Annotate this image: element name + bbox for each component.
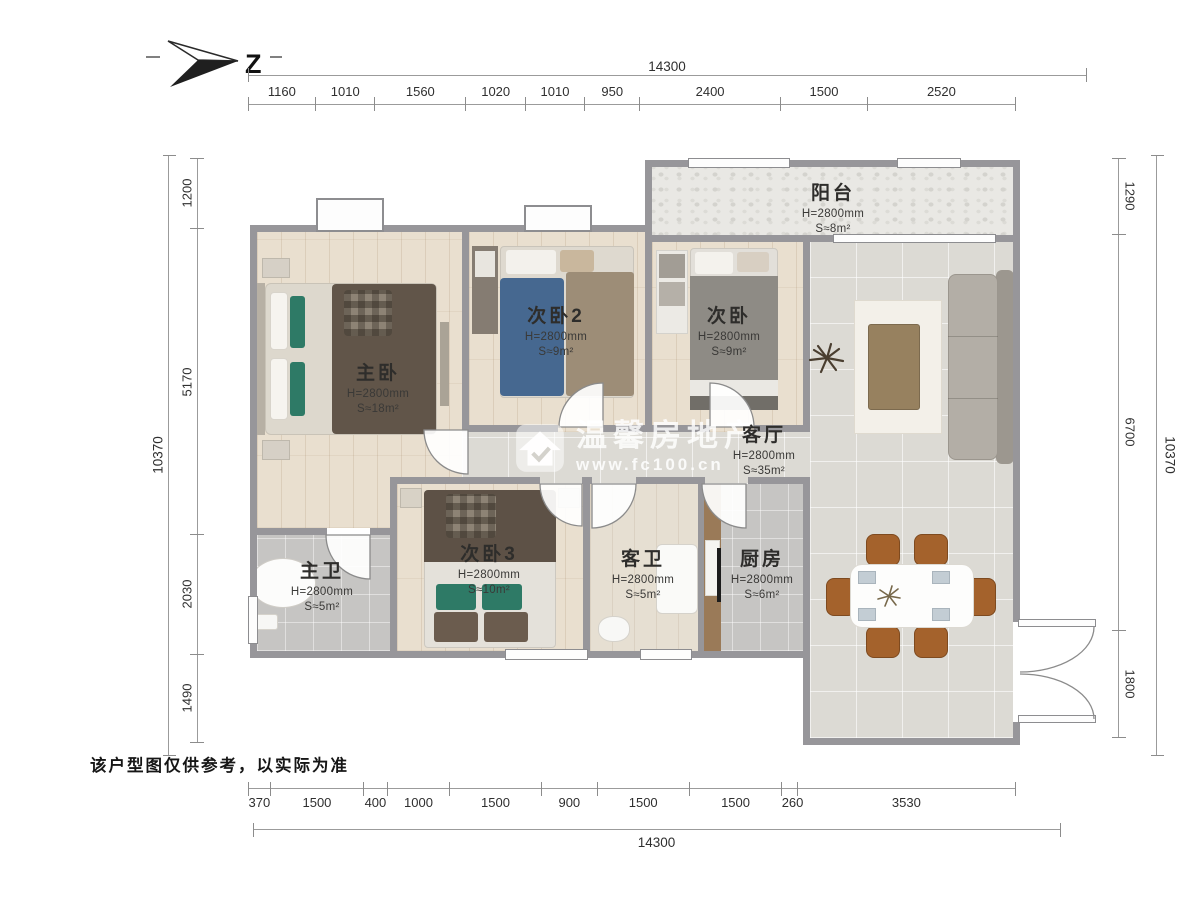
wall — [590, 225, 652, 232]
dimension-total-label: 10370 — [1163, 436, 1178, 474]
room-label-master-bedroom: 主卧 H=2800mm S≈18m² — [347, 362, 409, 417]
room-area: S≈35m² — [733, 464, 795, 479]
nightstand — [558, 488, 580, 508]
dimension-row-top: 11601010156010201010950240015002520 — [248, 84, 1015, 105]
dimension-value: 5170 — [179, 367, 194, 396]
room-area: S≈9m² — [698, 345, 760, 360]
sofa-cushion-divider — [948, 336, 998, 337]
dimension-value: 1000 — [388, 795, 450, 810]
pillow — [560, 250, 594, 272]
bed-bench — [440, 322, 449, 406]
place-setting — [932, 608, 950, 621]
place-setting — [858, 608, 876, 621]
watermark: 温馨房地产 www.fc100.cn — [514, 420, 761, 475]
wall — [583, 484, 590, 658]
dimension-value: 1010 — [525, 84, 584, 99]
dimension-segment: 2030 — [176, 534, 197, 654]
dimension-value: 1200 — [179, 179, 194, 208]
dimension-segment: 1800 — [1119, 631, 1140, 737]
room-height: H=2800mm — [291, 585, 353, 600]
window — [640, 649, 692, 660]
sofa — [948, 274, 998, 460]
dimension-row-right: 129067001800 — [1118, 158, 1140, 737]
dimension-segment: 2520 — [868, 84, 1015, 104]
window — [505, 649, 588, 660]
wardrobe-door — [659, 254, 685, 278]
house-icon — [514, 422, 566, 474]
dimension-value: 1160 — [248, 84, 316, 99]
pillow-teal — [290, 296, 305, 348]
dimension-value: 1560 — [375, 84, 466, 99]
dining-chair — [914, 626, 948, 658]
place-setting — [858, 571, 876, 584]
dimension-segment: 1290 — [1119, 158, 1140, 234]
wall — [250, 528, 327, 535]
pillow-brown — [484, 612, 528, 642]
pillow-plaid — [344, 290, 392, 336]
dimension-value: 370 — [248, 795, 271, 810]
room-area: S≈9m² — [525, 345, 587, 360]
wall — [250, 225, 322, 232]
dimension-total-top: 14300 — [248, 58, 1086, 76]
dimension-segment: 1200 — [176, 158, 197, 229]
dimension-segment: 1020 — [466, 84, 526, 104]
wall — [803, 484, 810, 658]
dimension-value: 1800 — [1122, 669, 1137, 698]
dimension-segment: 400 — [363, 789, 388, 815]
entry-door-leaf — [1018, 619, 1096, 627]
dimension-segment: 1560 — [375, 84, 466, 104]
pillow-plaid — [446, 494, 496, 538]
wall — [390, 477, 540, 484]
dimension-value: 1290 — [1122, 182, 1137, 211]
room-label-bedroom-2: 次卧2 H=2800mm S≈9m² — [525, 305, 587, 360]
room-area: S≈18m² — [347, 402, 409, 417]
window — [524, 205, 592, 232]
room-name: 客厅 — [733, 424, 795, 449]
wardrobe-door — [659, 282, 685, 306]
floor-plan-canvas: Z 主卧 — [0, 0, 1200, 900]
room-area: S≈8m² — [802, 222, 864, 237]
dimension-segment: 1500 — [689, 789, 781, 815]
room-name: 次卧3 — [458, 543, 520, 568]
dimension-value: 1500 — [449, 795, 541, 810]
wall — [636, 477, 705, 484]
entry-door-arc — [1020, 674, 1094, 719]
bed-headboard — [257, 283, 265, 435]
dimension-value: 1020 — [466, 84, 526, 99]
dimension-value: 260 — [782, 795, 798, 810]
room-area: S≈6m² — [731, 588, 793, 603]
wall — [698, 484, 704, 658]
room-name: 次卧2 — [525, 305, 587, 330]
room-label-master-bath: 主卫 H=2800mm S≈5m² — [291, 560, 353, 615]
place-setting — [932, 571, 950, 584]
pillow — [737, 252, 769, 272]
pillow — [270, 358, 288, 420]
dimension-segment: 1500 — [271, 789, 363, 815]
room-name: 客卫 — [612, 548, 674, 573]
room-label-guest-bath: 客卫 H=2800mm S≈5m² — [612, 548, 674, 603]
dimension-value: 1500 — [689, 795, 781, 810]
dimension-segment: 900 — [542, 789, 597, 815]
dimension-value: 1500 — [597, 795, 689, 810]
wall — [250, 225, 257, 658]
window — [688, 158, 790, 168]
wall — [803, 242, 810, 432]
toilet — [598, 616, 630, 642]
bed-footer — [690, 396, 778, 410]
room-height: H=2800mm — [802, 207, 864, 222]
dimension-total-label: 10370 — [151, 436, 166, 474]
dimension-segment: 950 — [584, 84, 640, 104]
wall — [462, 232, 469, 430]
room-name: 阳台 — [802, 182, 864, 207]
pillow-teal — [290, 362, 305, 416]
dimension-segment: 1490 — [176, 654, 197, 742]
pillow — [695, 252, 733, 274]
dining-chair — [866, 534, 900, 566]
coffee-table — [868, 324, 920, 410]
wall — [582, 477, 592, 484]
window — [248, 596, 258, 644]
wall — [803, 738, 1020, 745]
compass-arrow — [168, 41, 238, 61]
dining-chair — [914, 534, 948, 566]
room-name: 次卧 — [698, 305, 760, 330]
wall — [381, 225, 528, 232]
nightstand — [262, 258, 290, 278]
dimension-value: 2400 — [640, 84, 780, 99]
dimension-value: 400 — [363, 795, 388, 810]
room-height: H=2800mm — [612, 573, 674, 588]
room-name: 主卫 — [291, 560, 353, 585]
room-height: H=2800mm — [525, 330, 587, 345]
room-height: H=2800mm — [698, 330, 760, 345]
dimension-segment: 1500 — [780, 84, 868, 104]
dimension-total-label: 14300 — [648, 59, 686, 74]
room-height: H=2800mm — [458, 568, 520, 583]
room-name: 厨房 — [731, 548, 793, 573]
dimension-row-left: 1200517020301490 — [176, 158, 198, 742]
room-area: S≈10m² — [458, 583, 520, 598]
dimension-segment: 1500 — [597, 789, 689, 815]
dimension-total-right: 10370 — [1156, 155, 1157, 755]
wall — [390, 477, 397, 658]
entry-door-leaf — [1018, 715, 1096, 723]
room-area: S≈5m² — [612, 588, 674, 603]
dimension-value: 3530 — [798, 795, 1015, 810]
room-label-bedroom-3: 次卧3 H=2800mm S≈10m² — [458, 543, 520, 598]
dimension-value: 2520 — [868, 84, 1015, 99]
dimension-segment: 370 — [248, 789, 271, 815]
dimension-segment: 260 — [782, 789, 798, 815]
pillow-brown — [434, 612, 478, 642]
pillow — [270, 292, 288, 350]
dimension-segment: 6700 — [1119, 234, 1140, 630]
dimension-row-bottom: 370150040010001500900150015002603530 — [248, 788, 1015, 815]
sofa-cushion-divider — [948, 398, 998, 399]
room-label-bedroom: 次卧 H=2800mm S≈9m² — [698, 305, 760, 360]
dimension-total-bottom: 14300 — [253, 829, 1060, 852]
pillow — [506, 250, 556, 274]
room-height: H=2800mm — [733, 449, 795, 464]
room-height: H=2800mm — [347, 387, 409, 402]
wall — [645, 242, 652, 432]
dimension-value: 2030 — [179, 580, 194, 609]
window — [316, 198, 384, 232]
dimension-segment: 2400 — [640, 84, 780, 104]
dimension-segment: 1010 — [525, 84, 584, 104]
dimension-total-left: 10370 — [168, 155, 169, 755]
room-area: S≈5m² — [291, 600, 353, 615]
dimension-segment: 5170 — [176, 229, 197, 534]
dimension-segment: 1500 — [449, 789, 541, 815]
dimension-value: 6700 — [1122, 418, 1137, 447]
dimension-value: 1010 — [316, 84, 375, 99]
dimension-value: 950 — [584, 84, 640, 99]
dining-chair — [866, 626, 900, 658]
dimension-value: 1500 — [780, 84, 868, 99]
dimension-segment: 1160 — [248, 84, 316, 104]
dimension-segment: 3530 — [798, 789, 1015, 815]
room-label-living-room: 客厅 H=2800mm S≈35m² — [733, 424, 795, 479]
room-label-kitchen: 厨房 H=2800mm S≈6m² — [731, 548, 793, 603]
dimension-value: 1500 — [271, 795, 363, 810]
dimension-segment: 1010 — [316, 84, 375, 104]
wall — [803, 651, 810, 745]
wall — [1013, 160, 1020, 622]
entry-door-arc — [1020, 627, 1094, 672]
dimension-value: 1490 — [179, 684, 194, 713]
sofa-backrest — [996, 270, 1014, 464]
room-name: 主卧 — [347, 362, 409, 387]
disclaimer-text: 该户型图仅供参考，以实际为准 — [90, 752, 349, 776]
dimension-segment: 1000 — [388, 789, 450, 815]
room-height: H=2800mm — [731, 573, 793, 588]
room-label-balcony: 阳台 H=2800mm S≈8m² — [802, 182, 864, 237]
dimension-total-label: 14300 — [638, 835, 676, 850]
nightstand — [262, 440, 290, 460]
dimension-value: 900 — [542, 795, 597, 810]
wardrobe-door — [475, 251, 495, 277]
sliding-door-leaf — [717, 548, 721, 602]
window — [897, 158, 961, 168]
compass-arrow — [170, 60, 238, 87]
wall — [645, 160, 652, 242]
nightstand — [400, 488, 422, 508]
